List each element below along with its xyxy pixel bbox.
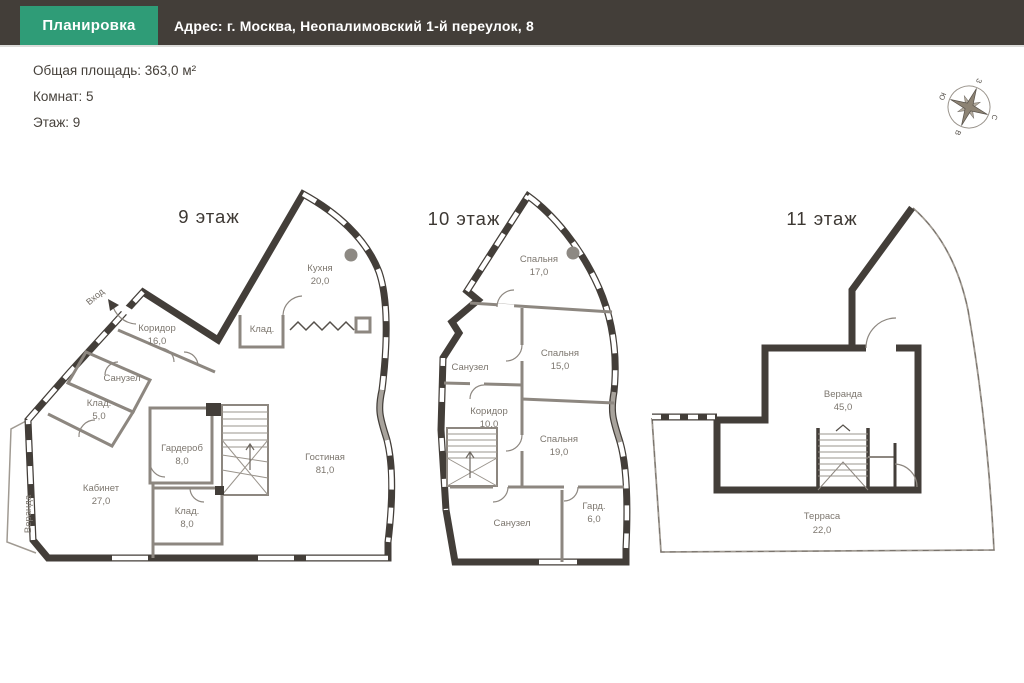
room-label: Спальня — [541, 348, 579, 359]
room-area: 15,0 — [551, 361, 570, 372]
room-label: Санузел — [103, 373, 140, 384]
door-gaps — [470, 306, 578, 487]
floor-plan-10: 10 этаж — [428, 196, 627, 562]
wall-pier — [215, 486, 224, 495]
door-swing — [866, 318, 896, 348]
staircase — [818, 425, 868, 492]
room-area: 20,0 — [311, 276, 330, 287]
room-label: Веранда — [824, 389, 863, 400]
floor-plan-11: 11 этаж Веранда 45,0 — [652, 208, 994, 552]
column — [345, 249, 358, 262]
room-area: 6,0 — [587, 514, 600, 525]
room-label: Санузел — [493, 518, 530, 529]
room-label: Кухня — [307, 263, 332, 274]
room-label: Санузел — [451, 362, 488, 373]
room-label: Спальня — [540, 434, 578, 445]
compass-rose-icon: С В Ю З — [927, 67, 1010, 148]
room-label: Веранда — [23, 494, 34, 533]
room-label: Спальня — [520, 254, 558, 265]
room-label: Клад. — [250, 324, 275, 335]
door-swing — [895, 464, 917, 487]
outer-wall — [28, 194, 392, 558]
staircase — [447, 428, 497, 486]
floor-plans-canvas: С В Ю З 9 этаж — [0, 0, 1024, 683]
room-area: 16,0 — [148, 336, 167, 347]
room-label: Гостиная — [305, 452, 345, 463]
interior-walls — [48, 315, 370, 558]
floor-9-title: 9 этаж — [178, 206, 239, 227]
floor-10-title: 10 этаж — [428, 208, 501, 229]
accordion-window — [290, 322, 354, 330]
window-band — [303, 194, 386, 390]
room-label: Клад. — [87, 398, 112, 409]
compass-east-label: В — [953, 129, 963, 137]
room-label: Коридор — [470, 406, 508, 417]
entrance-label: Вход — [84, 286, 107, 307]
room-label: Клад. — [175, 506, 200, 517]
room-area: 45,0 — [834, 402, 853, 413]
terrace-railing — [652, 208, 994, 552]
room-label: Терраса — [804, 511, 841, 522]
room-label: Гард. — [582, 501, 605, 512]
floor-plan-9: 9 этаж — [7, 194, 392, 558]
room-area: 27,0 — [92, 496, 111, 507]
room-label: Гардероб — [161, 443, 203, 454]
compass-north-label: С — [989, 113, 1000, 122]
room-area: 81,0 — [316, 465, 335, 476]
staircase — [222, 405, 268, 495]
room-area: 17,0 — [530, 267, 549, 278]
outer-wall — [852, 208, 912, 348]
terrace-railing-hatch — [652, 208, 994, 552]
room-area: 10,0 — [480, 419, 499, 430]
compass-south-label: Ю — [937, 91, 948, 102]
door-swings — [470, 290, 578, 502]
room-area: 8,0 — [175, 456, 188, 467]
wall-pier — [206, 403, 221, 416]
room-area: 5,0 — [92, 411, 105, 422]
room-area: 8,0 — [180, 519, 193, 530]
compass-west-label: З — [974, 77, 984, 85]
room-label: Кабинет — [83, 483, 120, 494]
room-area: 19,0 — [550, 447, 569, 458]
floor-9-room-labels: Кухня 20,0 Клад. Коридор 16,0 Санузел Кл… — [23, 263, 345, 533]
floor-11-room-labels: Веранда 45,0 Терраса 22,0 — [804, 389, 863, 536]
column — [567, 247, 580, 260]
floor-11-title: 11 этаж — [786, 208, 857, 229]
room-label: Коридор — [138, 323, 176, 334]
room-area: 22,0 — [813, 525, 832, 536]
